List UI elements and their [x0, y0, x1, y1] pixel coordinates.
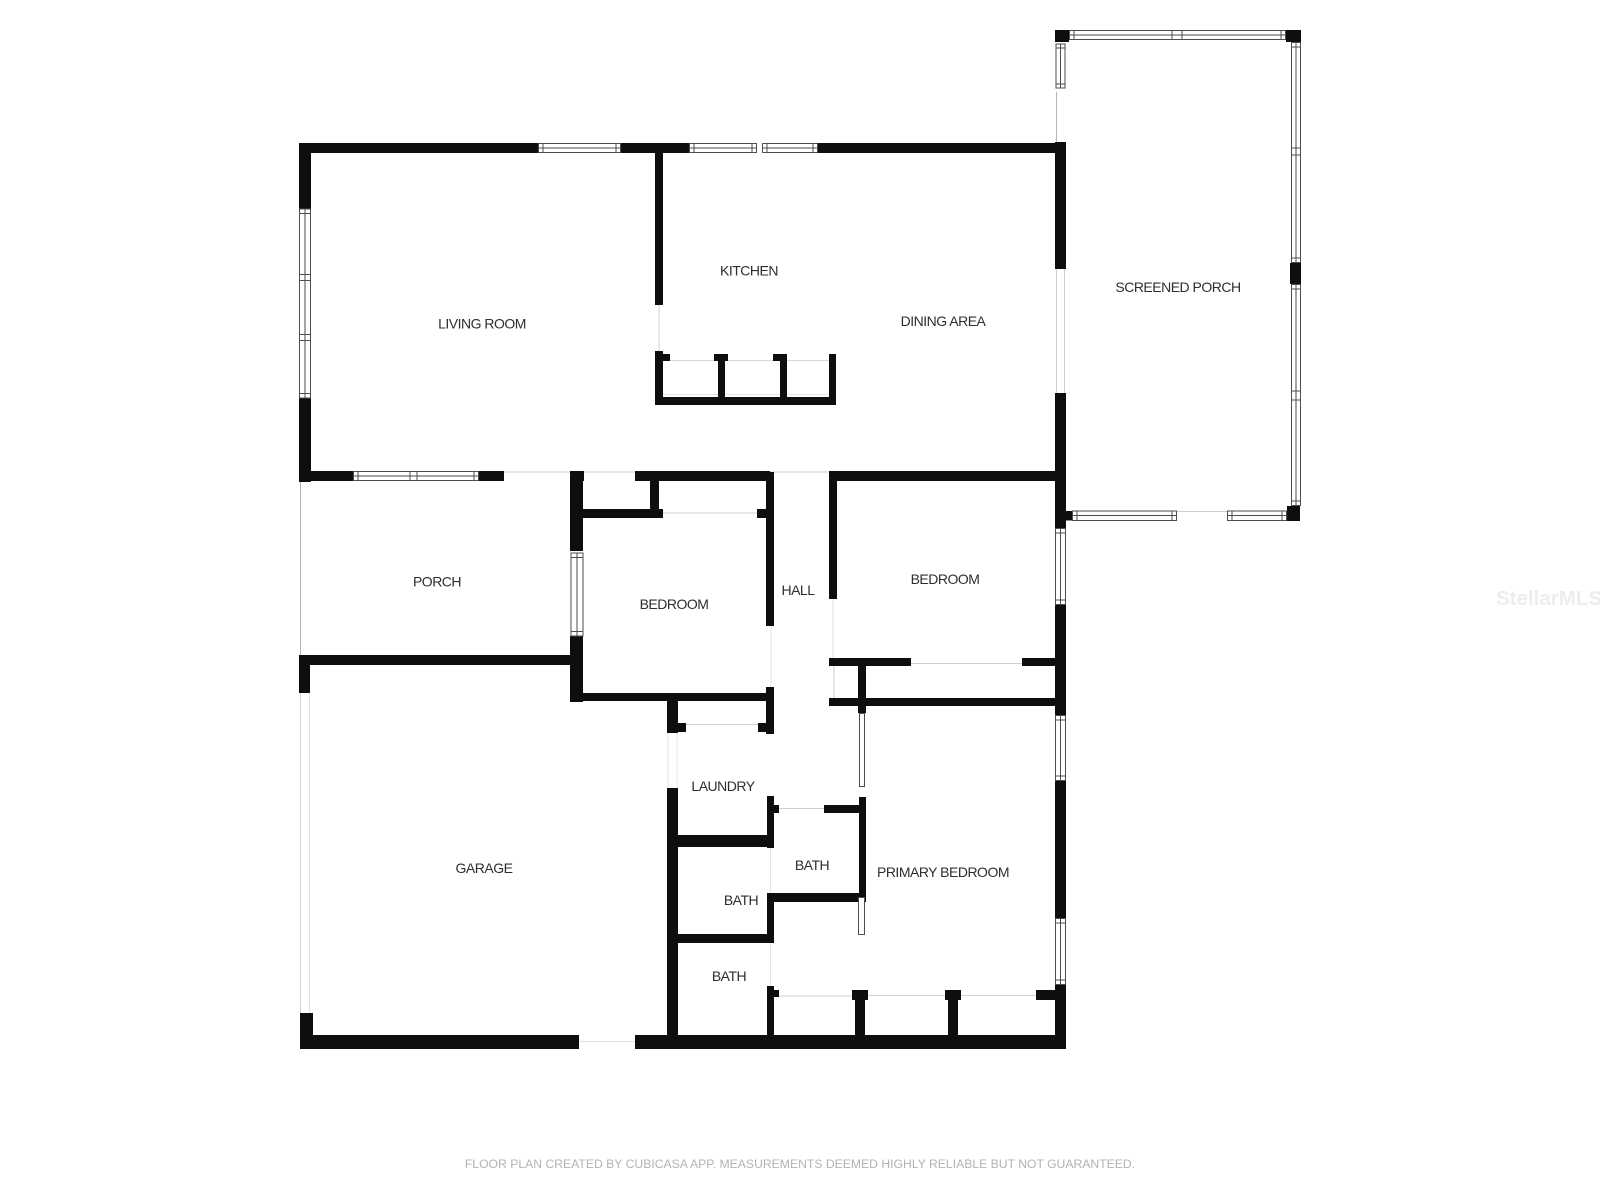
svg-text:BATH: BATH [795, 857, 829, 873]
svg-text:BEDROOM: BEDROOM [640, 596, 709, 612]
svg-text:LIVING ROOM: LIVING ROOM [438, 316, 526, 332]
svg-text:SCREENED PORCH: SCREENED PORCH [1115, 279, 1240, 295]
svg-text:BATH: BATH [724, 892, 758, 908]
svg-text:BATH: BATH [712, 968, 746, 984]
svg-text:StellarMLS: StellarMLS [1496, 587, 1600, 610]
svg-text:KITCHEN: KITCHEN [720, 263, 778, 279]
svg-text:GARAGE: GARAGE [456, 860, 513, 876]
svg-text:HALL: HALL [781, 582, 815, 598]
svg-text:PORCH: PORCH [413, 574, 461, 590]
svg-text:PRIMARY BEDROOM: PRIMARY BEDROOM [877, 864, 1009, 880]
svg-text:FLOOR PLAN CREATED BY CUBICASA: FLOOR PLAN CREATED BY CUBICASA APP. MEAS… [465, 1157, 1135, 1171]
svg-text:DINING AREA: DINING AREA [901, 313, 987, 329]
svg-text:LAUNDRY: LAUNDRY [691, 778, 755, 794]
svg-text:BEDROOM: BEDROOM [911, 571, 980, 587]
